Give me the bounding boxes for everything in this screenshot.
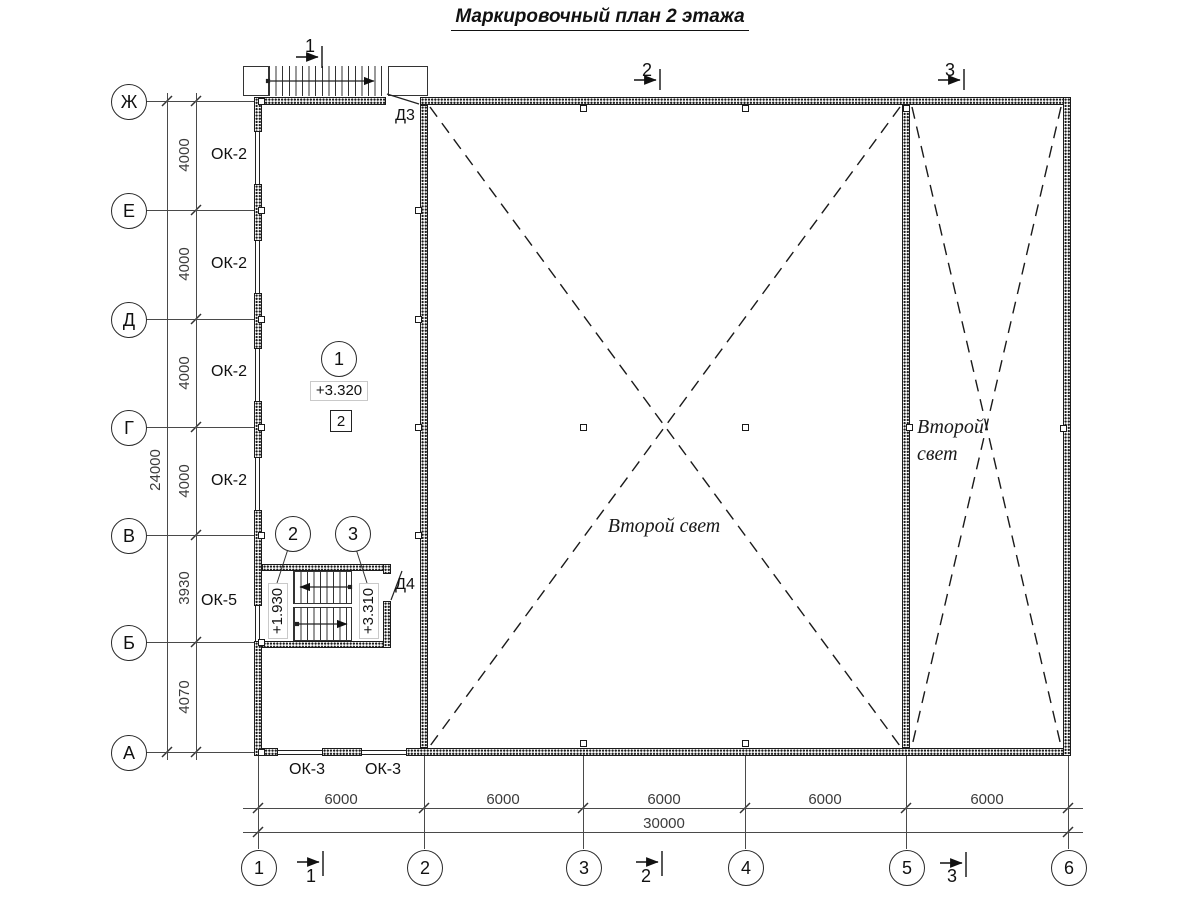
section-mark-1-bottom: 1: [301, 866, 321, 887]
row-axis-bubble: Д: [111, 302, 147, 338]
axis-leader-col: [583, 756, 584, 849]
pier-square: [258, 207, 265, 214]
dim-line-horizontal-total: [243, 832, 1083, 833]
pier-square: [258, 639, 265, 646]
axis-leader-row: [146, 427, 254, 428]
free-column-square: [742, 424, 749, 431]
second-light-note-line2: свет: [917, 441, 984, 468]
row-axis-bubble: Г: [111, 410, 147, 446]
col-axis-label: 1: [254, 858, 264, 879]
col-axis-label: 6: [1064, 858, 1074, 879]
dim-value: 6000: [309, 791, 373, 808]
axis-leader-row: [146, 752, 254, 753]
door-label-d3: Д3: [385, 107, 425, 125]
dim-value: 6000: [793, 791, 857, 808]
col-axis-bubble: 6: [1051, 850, 1087, 886]
dim-value: 3930: [177, 556, 193, 620]
dim-value: 6000: [632, 791, 696, 808]
col-axis-bubble: 5: [889, 850, 925, 886]
level-mark-stair-top: +3.310: [359, 583, 379, 639]
dim-value: 4000: [177, 123, 193, 187]
col-axis-bubble: 4: [728, 850, 764, 886]
pier-square: [742, 740, 749, 747]
row-axis-label: Д: [123, 310, 135, 331]
col-axis-label: 2: [420, 858, 430, 879]
stair-marker-number: 2: [288, 524, 298, 545]
pier-square: [258, 532, 265, 539]
pier-square: [415, 207, 422, 214]
dim-value: 6000: [955, 791, 1019, 808]
dim-value: 6000: [471, 791, 535, 808]
pier-square: [258, 424, 265, 431]
row-axis-label: Б: [123, 633, 135, 654]
dim-line-vertical-total: [167, 93, 168, 760]
section-mark-1-top: 1: [300, 36, 320, 57]
pier-square: [580, 105, 587, 112]
window-label-ok2: ОК-2: [203, 472, 255, 490]
row-axis-bubble: Ж: [111, 84, 147, 120]
section-mark-2-bottom: 2: [636, 866, 656, 887]
second-light-note-line1: Второй: [917, 414, 984, 441]
axis-leader-row: [146, 210, 254, 211]
window-label-ok2: ОК-2: [203, 363, 255, 381]
pier-square: [415, 532, 422, 539]
dim-value-total: 24000: [148, 438, 164, 502]
room-box-marker: 2: [330, 410, 352, 432]
pier-square: [906, 424, 913, 431]
level-mark-stair-landing: +1.930: [268, 583, 288, 639]
window-label-ok3: ОК-3: [357, 761, 409, 779]
row-axis-label: Е: [123, 201, 135, 222]
room-number: 1: [334, 349, 344, 370]
row-axis-bubble: А: [111, 735, 147, 771]
window-label-ok5: ОК-5: [193, 592, 245, 610]
row-axis-label: А: [123, 743, 135, 764]
axis-leader-row: [146, 535, 254, 536]
dim-value: 4000: [177, 449, 193, 513]
dim-value: 4070: [177, 665, 193, 729]
col-axis-label: 4: [741, 858, 751, 879]
window-label-ok2: ОК-2: [203, 146, 255, 164]
axis-leader-col: [745, 756, 746, 849]
row-axis-bubble: Е: [111, 193, 147, 229]
row-axis-label: В: [123, 526, 135, 547]
row-axis-label: Ж: [121, 92, 138, 113]
pier-square: [1060, 425, 1067, 432]
col-axis-label: 5: [902, 858, 912, 879]
dim-line-horizontal-segments: [243, 808, 1083, 809]
col-axis-bubble: 3: [566, 850, 602, 886]
dim-value: 4000: [177, 232, 193, 296]
col-axis-bubble: 1: [241, 850, 277, 886]
dim-line-vertical-segments: [196, 93, 197, 760]
free-column-square: [580, 424, 587, 431]
second-light-note-center: Второй свет: [588, 515, 740, 538]
col-axis-bubble: 2: [407, 850, 443, 886]
section-mark-3-top: 3: [940, 60, 960, 81]
col-axis-label: 3: [579, 858, 589, 879]
room-number-bubble: 1: [321, 341, 357, 377]
marker-leader-lines: [277, 549, 367, 583]
section-mark-2-top: 2: [637, 60, 657, 81]
dim-value: 4000: [177, 341, 193, 405]
section-mark-3-bottom: 3: [942, 866, 962, 887]
pier-square: [903, 105, 910, 112]
axis-leader-col: [424, 756, 425, 849]
stair-marker-number: 3: [348, 524, 358, 545]
window-label-ok2: ОК-2: [203, 255, 255, 273]
pier-square: [415, 316, 422, 323]
pier-square: [580, 740, 587, 747]
pier-square: [258, 316, 265, 323]
axis-leader-row: [146, 642, 254, 643]
row-axis-bubble: Б: [111, 625, 147, 661]
axis-leader-col: [258, 756, 259, 849]
axis-leader-col: [1068, 756, 1069, 849]
row-axis-bubble: В: [111, 518, 147, 554]
window-label-ok3: ОК-3: [281, 761, 333, 779]
pier-square: [258, 98, 265, 105]
pier-square: [415, 424, 422, 431]
pier-square: [742, 105, 749, 112]
stair-marker-bubble: 3: [335, 516, 371, 552]
pier-square: [258, 749, 265, 756]
second-light-note-right: Второй свет: [917, 414, 984, 468]
axis-leader-row: [146, 101, 254, 102]
door-swing-lines: [387, 94, 419, 600]
door-label-d4: Д4: [385, 576, 425, 594]
stair-marker-bubble: 2: [275, 516, 311, 552]
row-axis-label: Г: [124, 418, 134, 439]
floor-plan-drawing: Маркировочный план 2 этажа: [0, 0, 1200, 900]
dim-value-total: 30000: [624, 815, 704, 832]
section-cut-arrows: [296, 46, 966, 877]
axis-leader-row: [146, 319, 254, 320]
level-mark-floor: +3.320: [310, 381, 368, 401]
axis-leader-col: [906, 756, 907, 849]
